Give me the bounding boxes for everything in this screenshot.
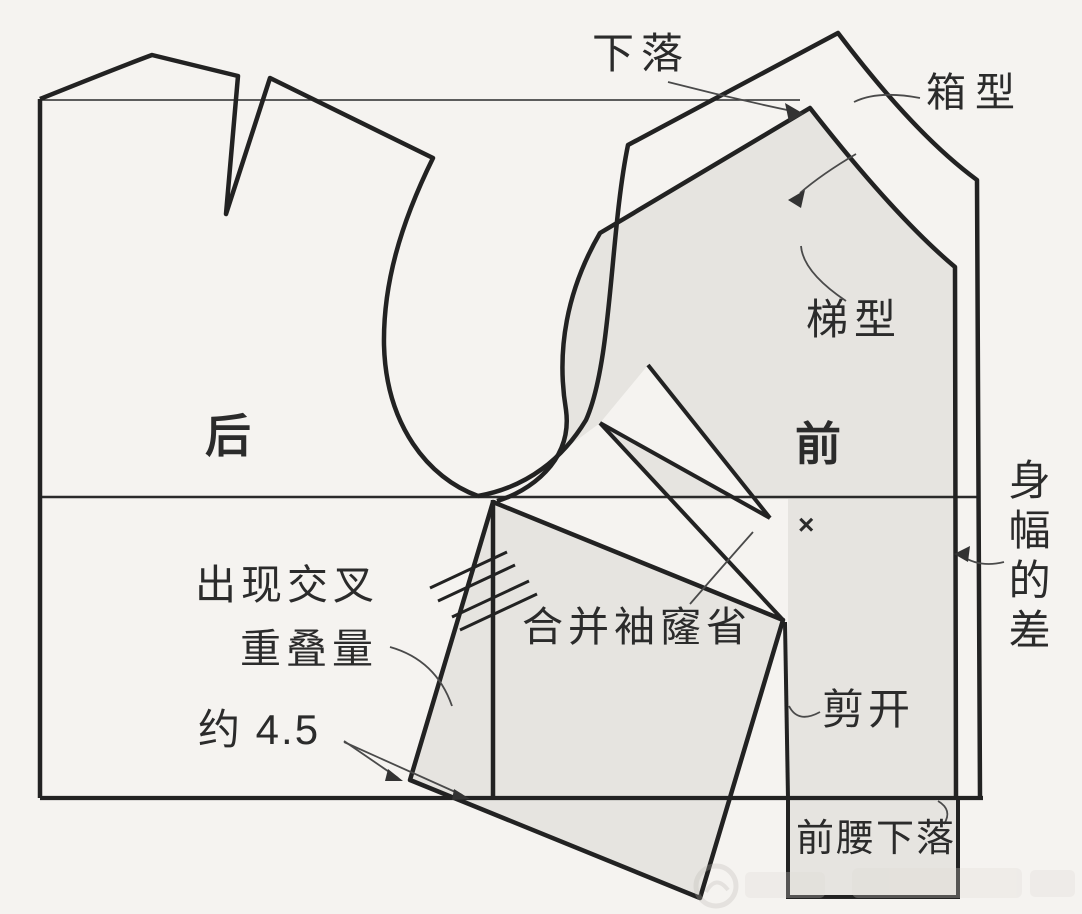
label-cross-appears: 出现交叉 [195, 564, 379, 607]
pattern-drawing [0, 0, 1082, 914]
arrow-approx-1 [385, 769, 403, 781]
cut-line [785, 622, 788, 798]
label-box-type: 箱型 [926, 72, 1024, 114]
label-merge-armhole-dart: 合并袖窿省 [522, 606, 752, 649]
label-overlap-amount: 重叠量 [240, 628, 378, 671]
label-cut-open: 剪开 [822, 688, 914, 732]
pattern-diagram: 下落 箱型 梯型 后 前 身幅的差 出现交叉 重叠量 约 4.5 合并袖窿省 剪… [0, 0, 1082, 914]
label-front: 前 [795, 420, 841, 468]
label-front-waist-drop: 前腰下落 [796, 820, 956, 860]
leader-drop [668, 82, 792, 111]
front-side-panel-fill [788, 498, 955, 798]
label-trapezoid-type: 梯型 [806, 298, 902, 342]
label-drop: 下落 [592, 32, 690, 76]
label-approx-value: 约 4.5 [198, 708, 320, 752]
back-piece-outline [40, 55, 478, 496]
bust-point-mark: × [798, 510, 814, 539]
watermark [696, 866, 1075, 906]
label-back: 后 [205, 412, 251, 460]
label-body-width-difference: 身幅的差 [1004, 458, 1048, 658]
